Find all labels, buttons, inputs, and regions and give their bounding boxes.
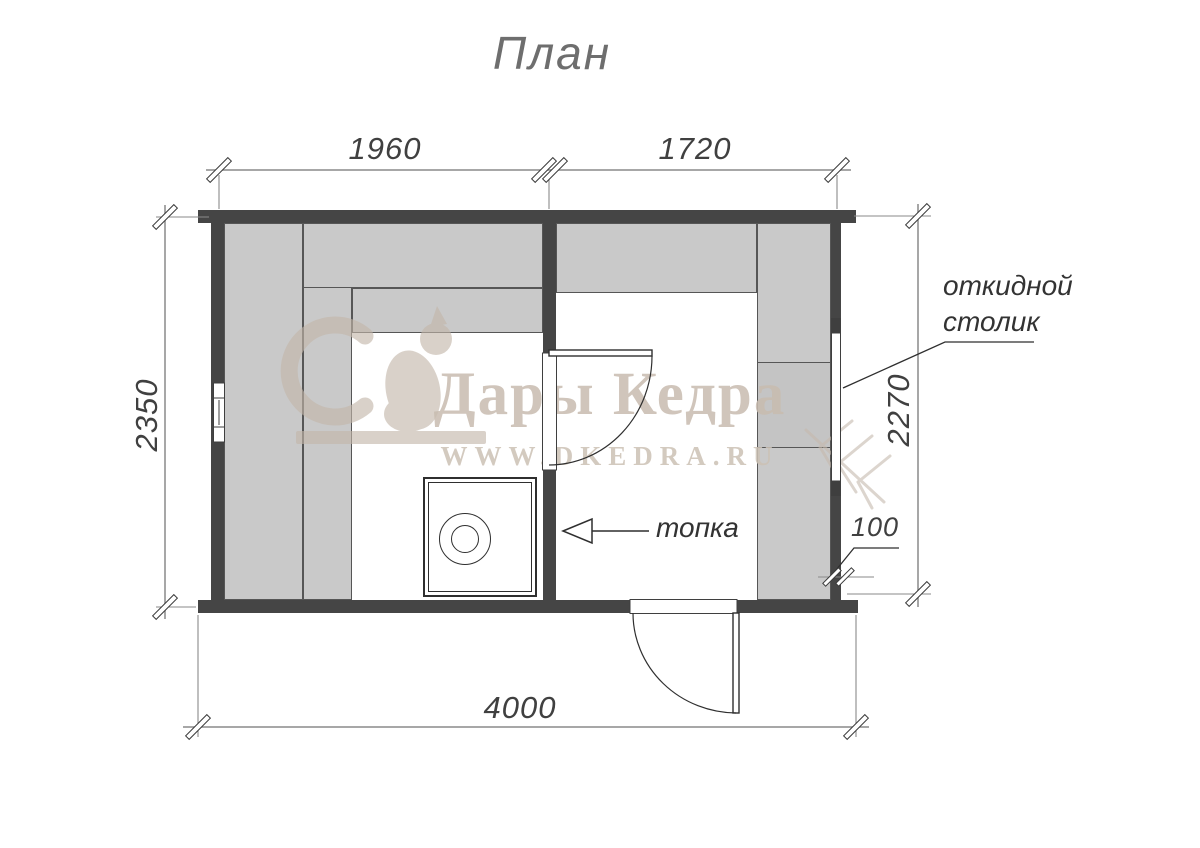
folding-table-leader (843, 342, 1034, 388)
dim-top-left: 1960 (325, 131, 445, 167)
leaders (563, 342, 1034, 580)
firebox-label: топка (656, 512, 739, 544)
dimension-ticks (153, 158, 931, 740)
plan-title: План (452, 26, 652, 80)
wall-top (198, 210, 856, 223)
dim-top-right: 1720 (635, 131, 755, 167)
door-interior-frame (543, 353, 557, 470)
dim-right: 2270 (881, 355, 917, 465)
walls (198, 210, 858, 613)
dim-wall-thickness: 100 (843, 512, 907, 543)
wall-bottom (198, 600, 858, 613)
folding-table-label-line1: откидной (943, 270, 1073, 302)
door-exterior-frame (630, 600, 737, 614)
door-exterior-leaf (733, 613, 739, 713)
door-interior-leaf (549, 350, 652, 356)
door-interior-arc-icon (549, 356, 652, 465)
firebox-arrow-icon (563, 519, 592, 543)
folding-table (831, 318, 841, 496)
floor-plan-page: Дары Кедра WWW.DKEDRA.RU (0, 0, 1200, 848)
dim-left: 2350 (129, 360, 165, 470)
door-exterior (630, 600, 739, 714)
door-exterior-arc-icon (633, 613, 736, 713)
plan-drawing (0, 0, 1200, 848)
dim-bottom: 4000 (460, 690, 580, 726)
window-left-wall (214, 383, 225, 442)
door-interior (543, 350, 653, 470)
folding-table-label-line2: столик (943, 306, 1040, 338)
